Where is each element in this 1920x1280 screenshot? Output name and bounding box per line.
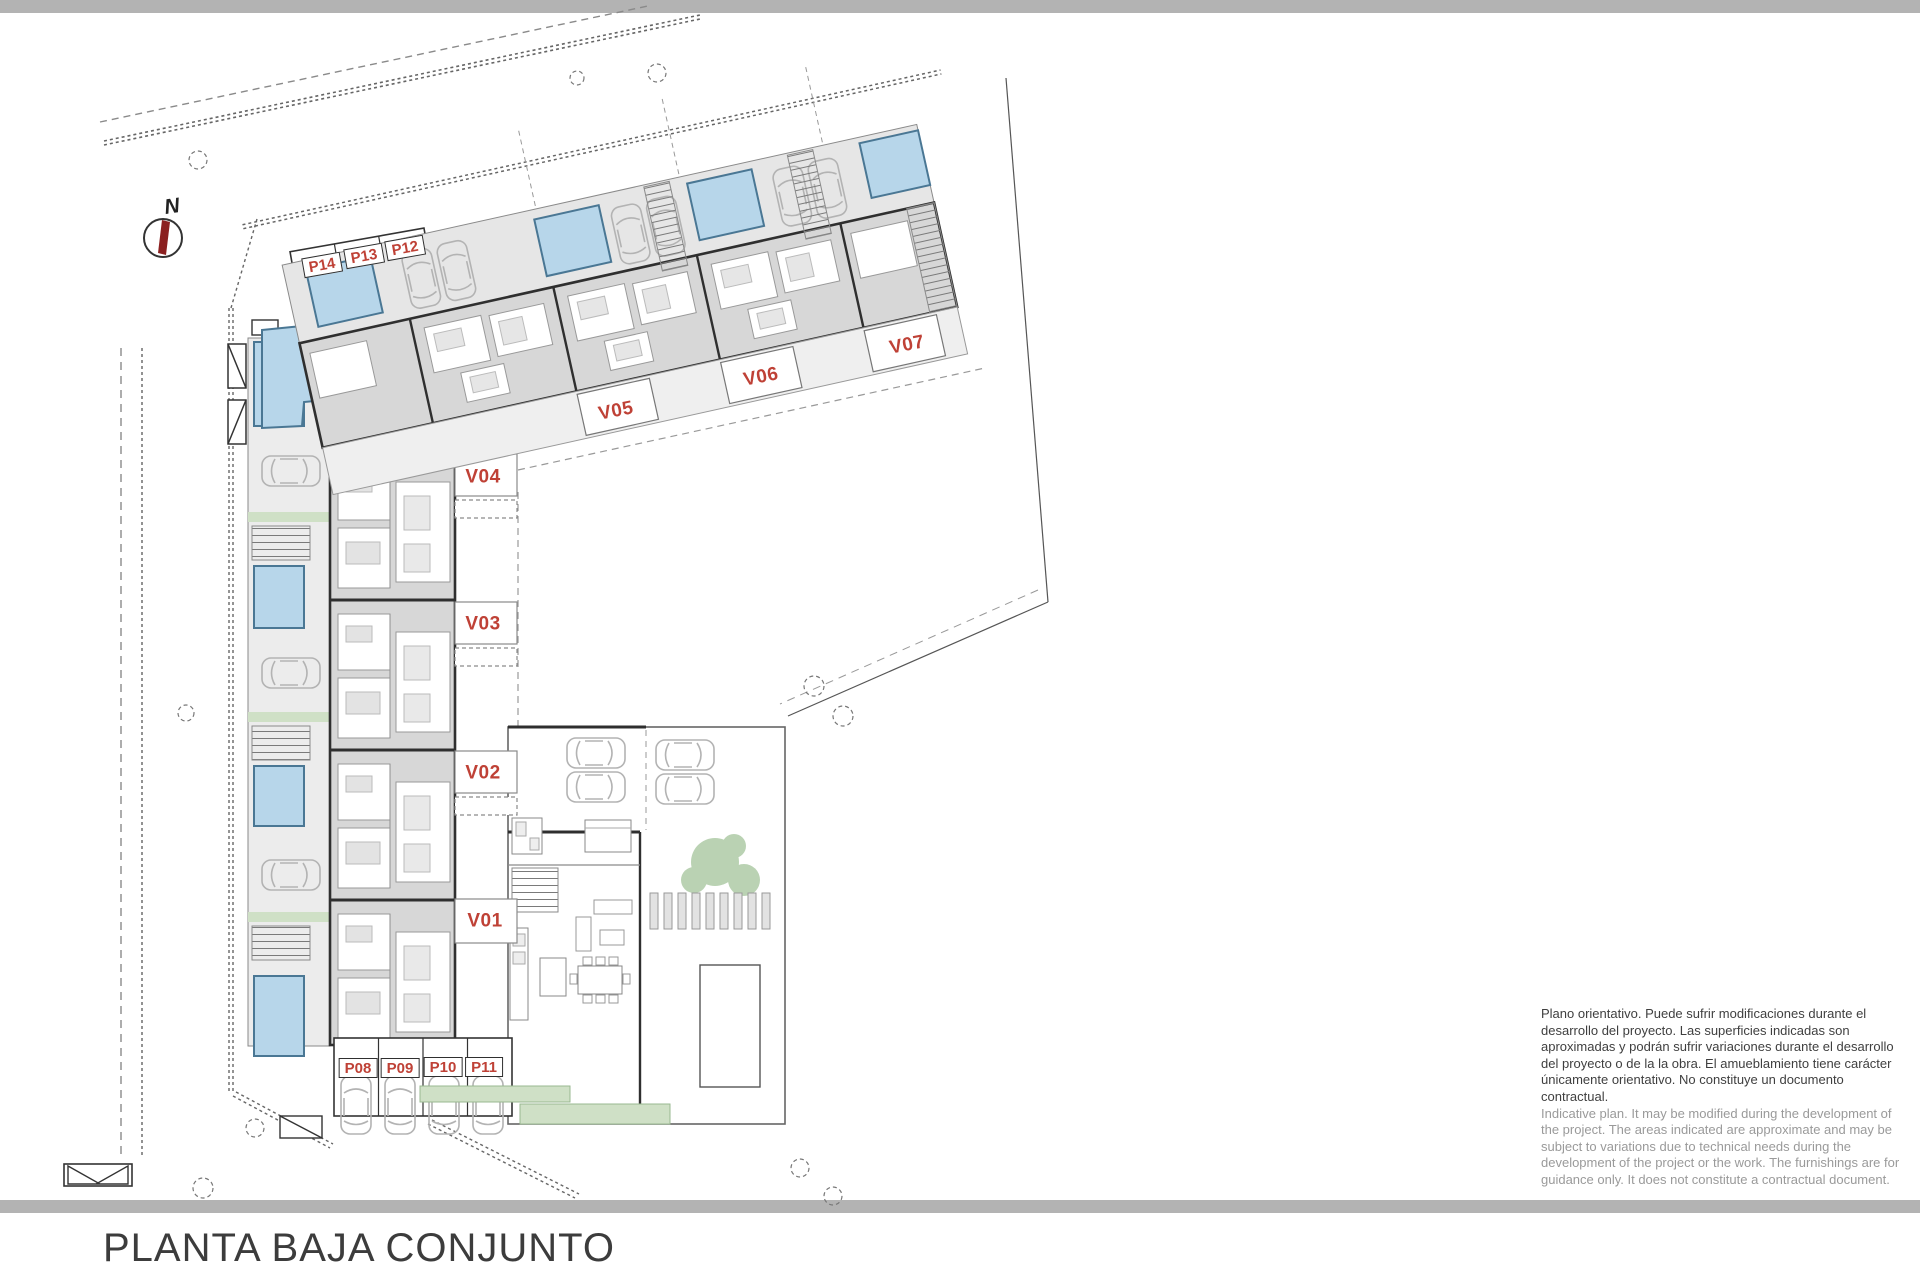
unit-label-v02: V02	[465, 764, 500, 783]
north-label: N	[163, 194, 181, 220]
communal-area	[508, 727, 785, 1124]
pool	[254, 566, 304, 628]
parking-label-p09: P09	[381, 1058, 420, 1078]
sheet-title: PLANTA BAJA CONJUNTO	[103, 1226, 615, 1271]
parking-label-p10: P10	[424, 1057, 463, 1077]
garden-strip	[520, 1104, 670, 1124]
pergola-slats	[650, 893, 770, 929]
disclaimer-english: Indicative plan. It may be modified duri…	[1541, 1106, 1913, 1189]
unit-label-v03: V03	[465, 615, 500, 634]
unit-label-v01: V01	[467, 912, 502, 931]
disclaimer-spanish: Plano orientativo. Puede sufrir modifica…	[1541, 1006, 1913, 1106]
communal-pool	[700, 965, 760, 1087]
parking-label-p11: P11	[465, 1057, 503, 1077]
unit-label-v04: V04	[465, 468, 500, 487]
floor-plan-sheet: { "sheet": { "title": "PLANTA BAJA CONJU…	[0, 0, 1920, 1280]
disclaimer-block: Plano orientativo. Puede sufrir modifica…	[1541, 1006, 1913, 1189]
pool	[254, 766, 304, 826]
top-wing-building	[236, 39, 1002, 501]
pool	[254, 976, 304, 1056]
parking-label-p08: P08	[339, 1058, 378, 1078]
